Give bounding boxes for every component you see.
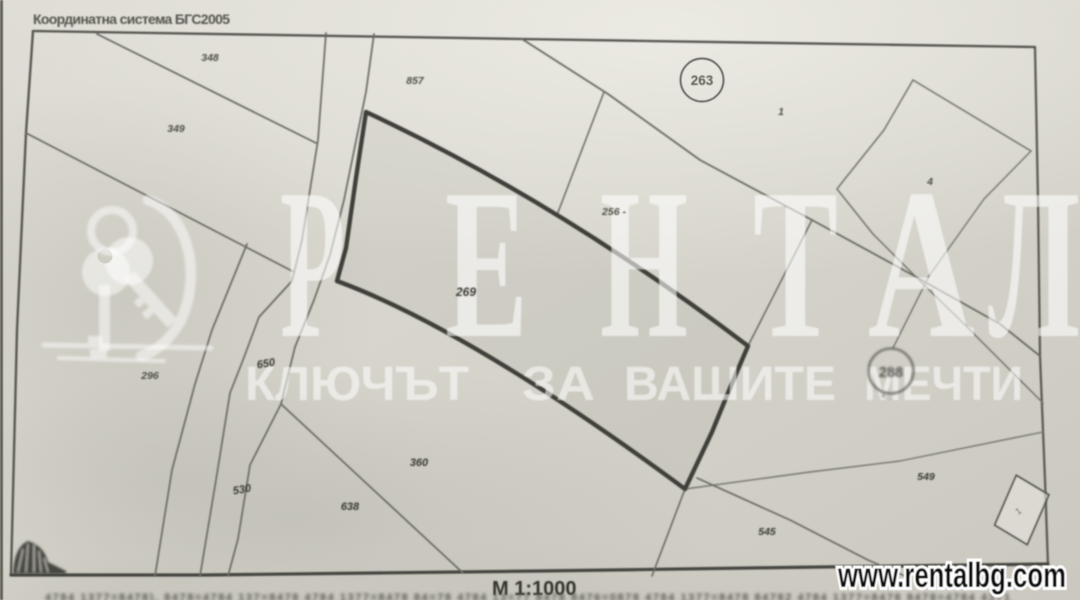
svg-text:296: 296 (140, 370, 159, 382)
svg-text:ВАШИТЕ: ВАШИТЕ (624, 358, 836, 411)
svg-text:349: 349 (167, 123, 185, 135)
svg-text:Н: Н (600, 144, 688, 383)
svg-text:263: 263 (691, 73, 714, 88)
svg-text:Т: Т (753, 144, 838, 383)
svg-text:638: 638 (341, 501, 360, 513)
svg-text:348: 348 (201, 52, 219, 64)
svg-text:А: А (868, 144, 975, 383)
svg-text:857: 857 (406, 75, 425, 87)
svg-text:КЛЮЧЪТ: КЛЮЧЪТ (245, 358, 469, 411)
svg-text:www.rentalbg.com: www.rentalbg.com (837, 556, 1066, 595)
svg-text:256 -: 256 - (601, 206, 626, 218)
svg-text:Е: Е (445, 144, 528, 383)
svg-text:1: 1 (778, 106, 784, 118)
svg-text:545: 545 (758, 526, 776, 538)
svg-text:288: 288 (879, 365, 903, 381)
svg-text:Координатна система БГС2005: Координатна система БГС2005 (33, 11, 230, 27)
svg-text:360: 360 (410, 457, 429, 469)
svg-text:269: 269 (455, 285, 476, 299)
svg-text:Л: Л (988, 144, 1080, 383)
svg-text:Р: Р (280, 144, 345, 383)
svg-text:4: 4 (926, 176, 933, 188)
svg-text:549: 549 (917, 471, 935, 483)
svg-text:+ .: + . (881, 391, 891, 401)
svg-text:ЗА: ЗА (522, 358, 595, 411)
